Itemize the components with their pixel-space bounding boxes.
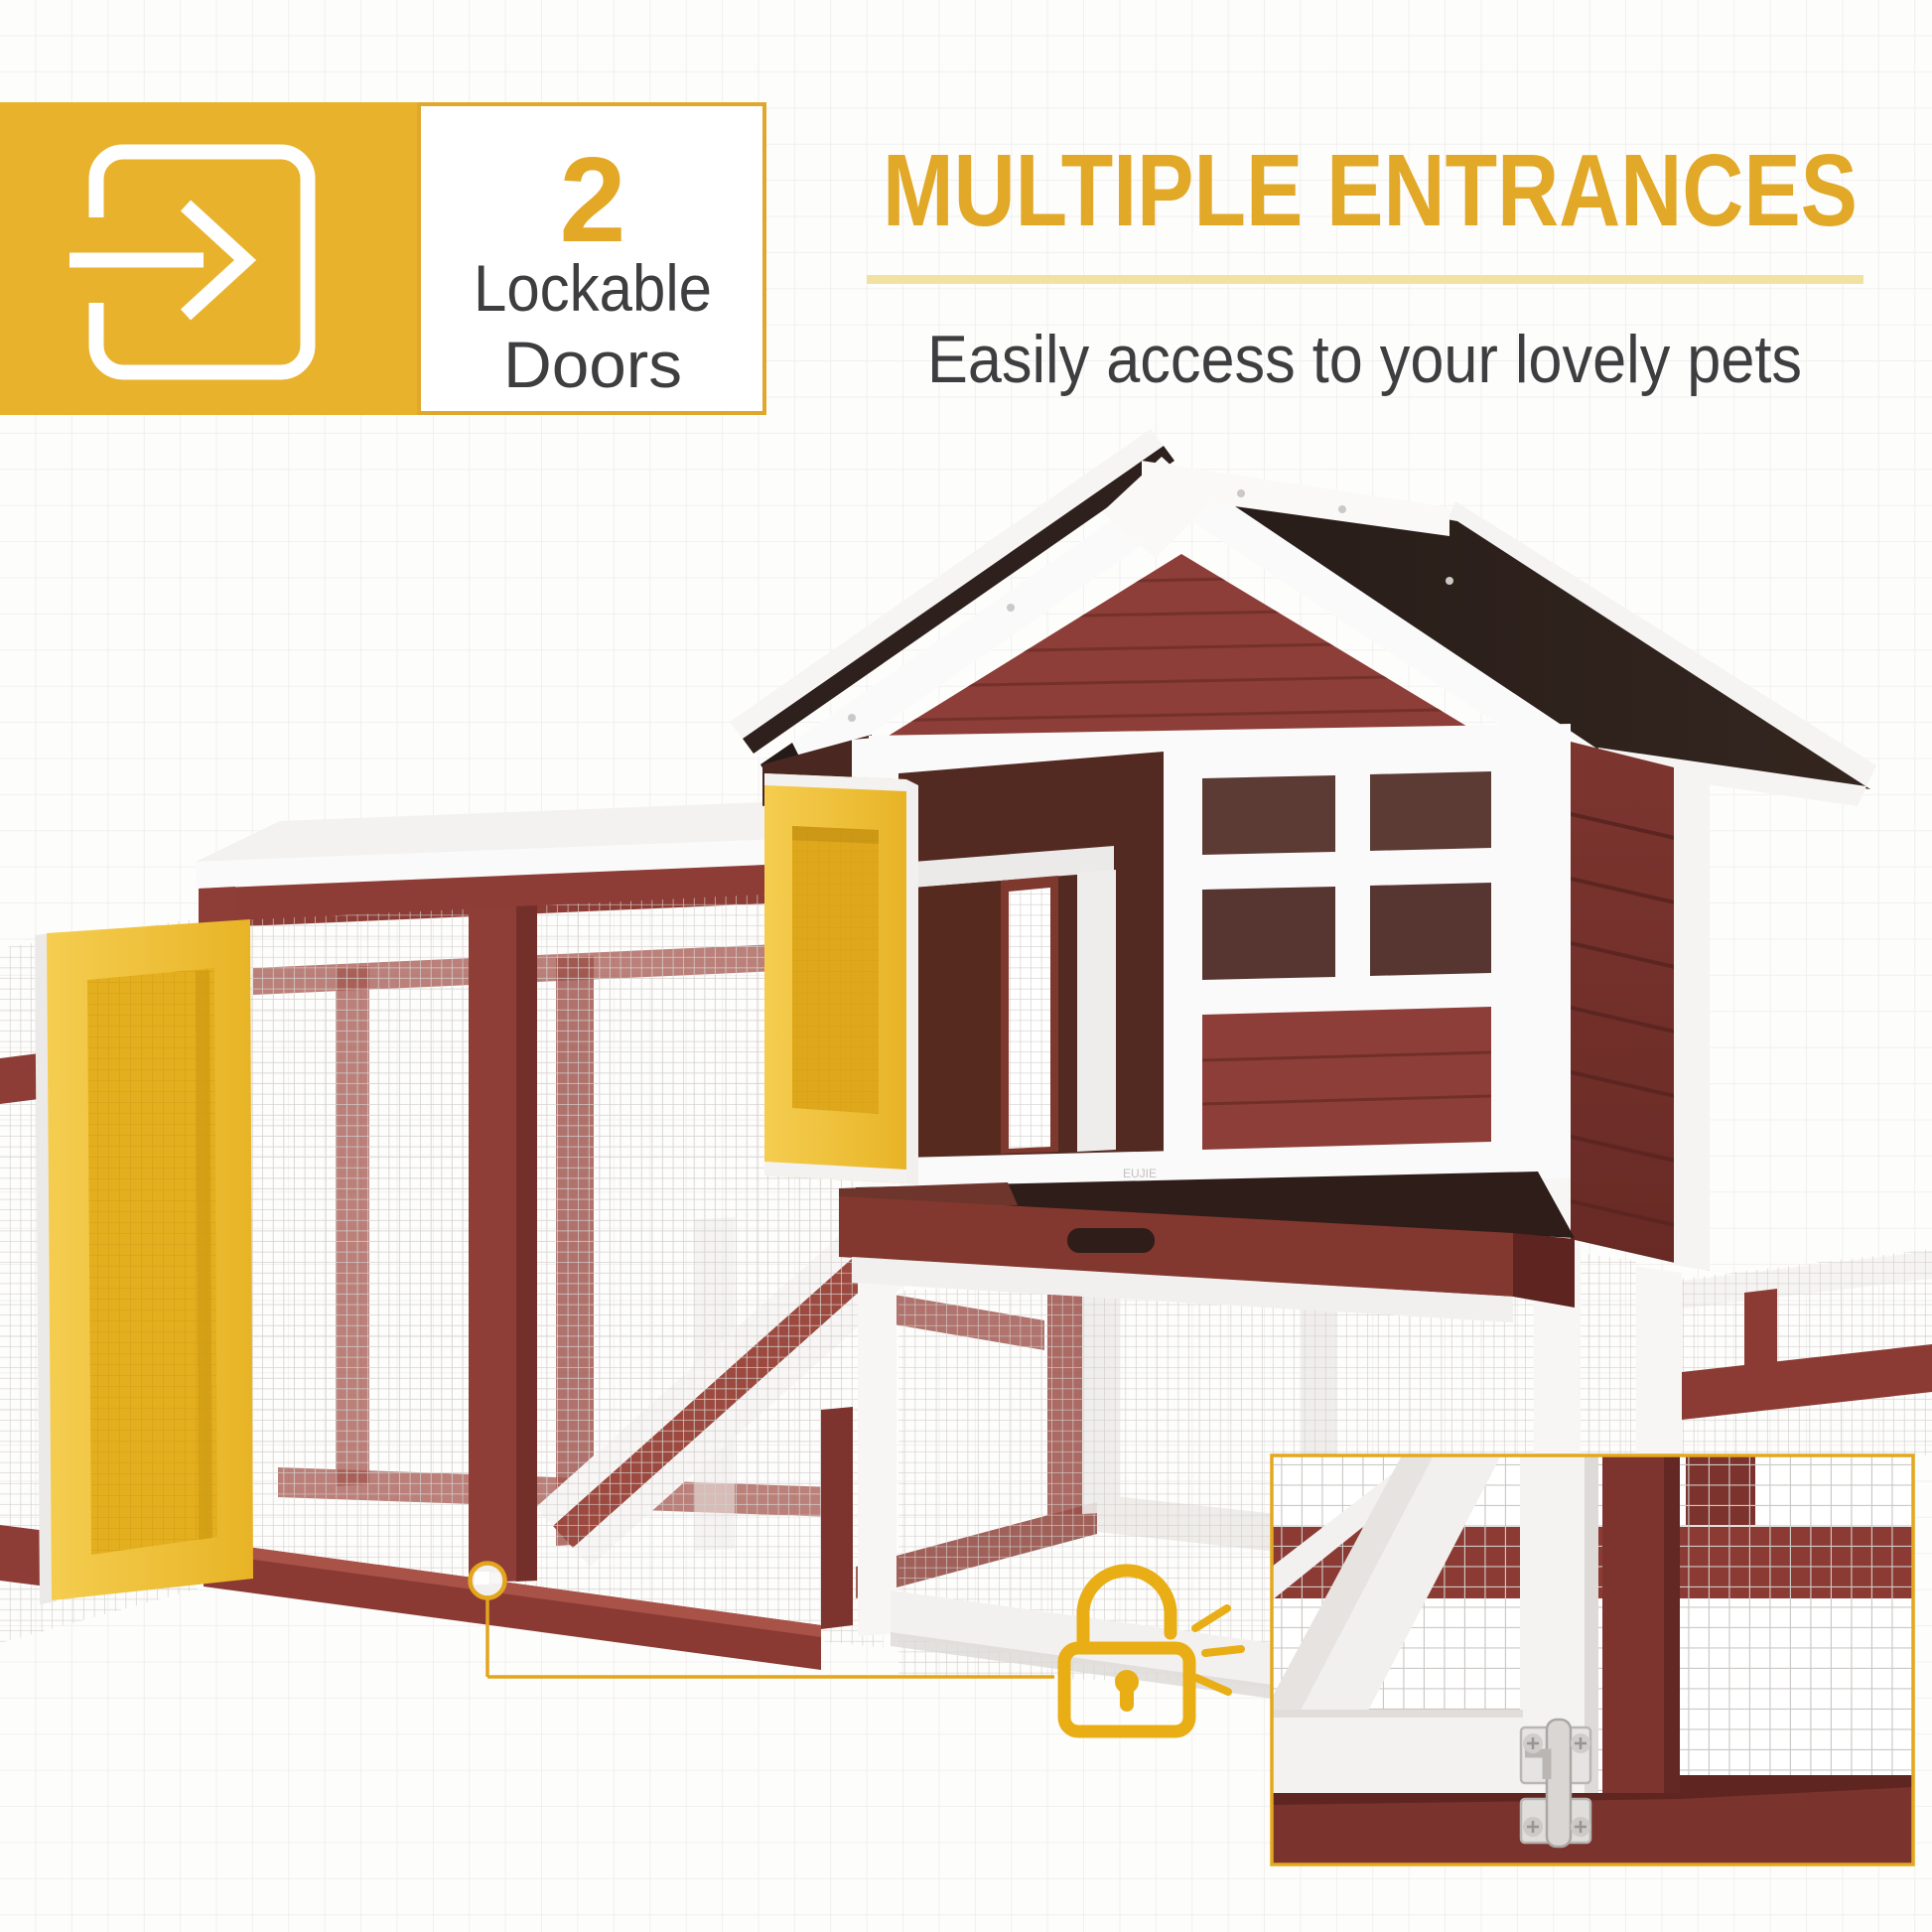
svg-text:Easily access to your lovely p: Easily access to your lovely pets [927, 322, 1802, 397]
svg-text:Doors: Doors [503, 328, 682, 401]
svg-text:MULTIPLE ENTRANCES: MULTIPLE ENTRANCES [883, 133, 1858, 247]
svg-text:Lockable: Lockable [474, 251, 712, 325]
svg-text:2: 2 [560, 132, 626, 267]
svg-text:EUJIE: EUJIE [1123, 1167, 1157, 1180]
